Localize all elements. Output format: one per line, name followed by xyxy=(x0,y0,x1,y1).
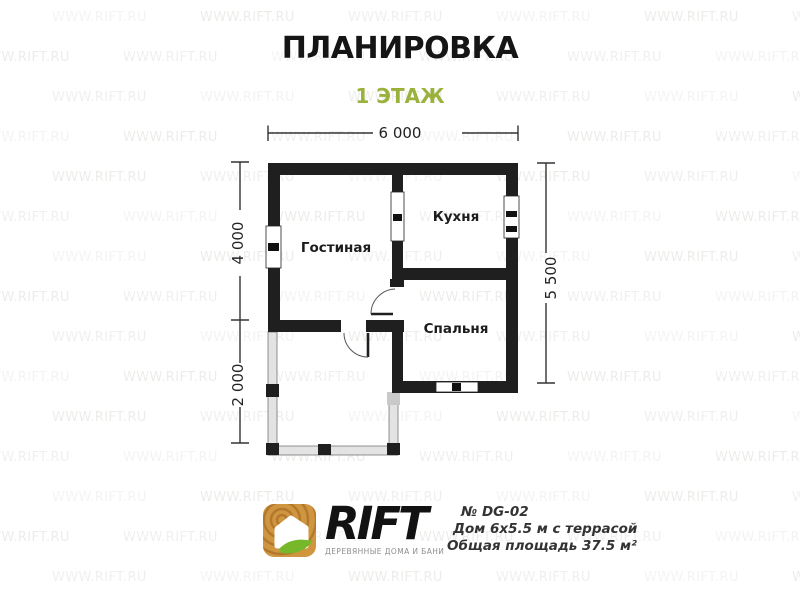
window-tick xyxy=(452,383,461,391)
footer: RIFT ДЕРЕВЯННЫЕ ДОМА И БАНИ № DG-02 Дом … xyxy=(263,504,637,557)
window-tick xyxy=(506,226,517,232)
floorplan-page: WWW.RIFT.RUWWW.RIFT.RUWWW.RIFT.RUWWW.RIF… xyxy=(0,0,800,591)
terrace-post xyxy=(266,443,279,455)
dimension-right: 5 500 xyxy=(537,163,560,383)
wall-living-bottom-left xyxy=(268,320,341,332)
model-number: № DG-02 xyxy=(447,504,637,521)
terrace-post xyxy=(318,444,331,455)
terrace-post-light xyxy=(387,392,400,405)
room-label-living-room: Гостиная xyxy=(301,240,371,256)
house-description: Дом 6х5.5 м с террасой xyxy=(447,521,637,538)
room-label-bedroom: Спальня xyxy=(424,321,489,337)
wall-living-bottom-right xyxy=(366,320,404,332)
wall-kitchen-bottom xyxy=(392,268,518,280)
floor-label: 1 ЭТАЖ xyxy=(0,84,800,108)
total-area: Общая площадь 37.5 м² xyxy=(447,538,637,555)
window-tick xyxy=(268,243,279,251)
brand-tagline: ДЕРЕВЯННЫЕ ДОМА И БАНИ xyxy=(325,547,433,556)
dimension-right-label: 5 500 xyxy=(542,257,560,300)
brand-block: RIFT ДЕРЕВЯННЫЕ ДОМА И БАНИ xyxy=(325,504,433,556)
dimension-left-upper: 4 000 xyxy=(229,162,249,320)
window-tick xyxy=(506,211,517,217)
dimension-top: 6 000 xyxy=(268,124,518,142)
dimension-left-upper-label: 4 000 xyxy=(229,222,247,265)
terrace-structure xyxy=(266,332,400,455)
window-tick xyxy=(393,214,402,221)
terrace-post xyxy=(387,443,400,455)
room-label-kitchen: Кухня xyxy=(433,209,480,225)
bedroom-door-swing xyxy=(371,289,395,314)
dimension-top-label: 6 000 xyxy=(379,124,422,142)
door-jamb xyxy=(390,279,404,287)
dimension-left-lower-label: 2 000 xyxy=(229,364,247,407)
dimension-left-lower: 2 000 xyxy=(229,320,249,443)
model-info: № DG-02 Дом 6х5.5 м с террасой Общая пло… xyxy=(447,504,637,555)
terrace-door-swing xyxy=(344,333,368,357)
rift-logo-icon xyxy=(263,504,316,557)
terrace-post xyxy=(266,384,279,397)
page-title: ПЛАНИРОВКА xyxy=(0,31,800,66)
terrace-wall-bottom xyxy=(268,446,398,455)
brand-name: RIFT xyxy=(325,504,433,544)
